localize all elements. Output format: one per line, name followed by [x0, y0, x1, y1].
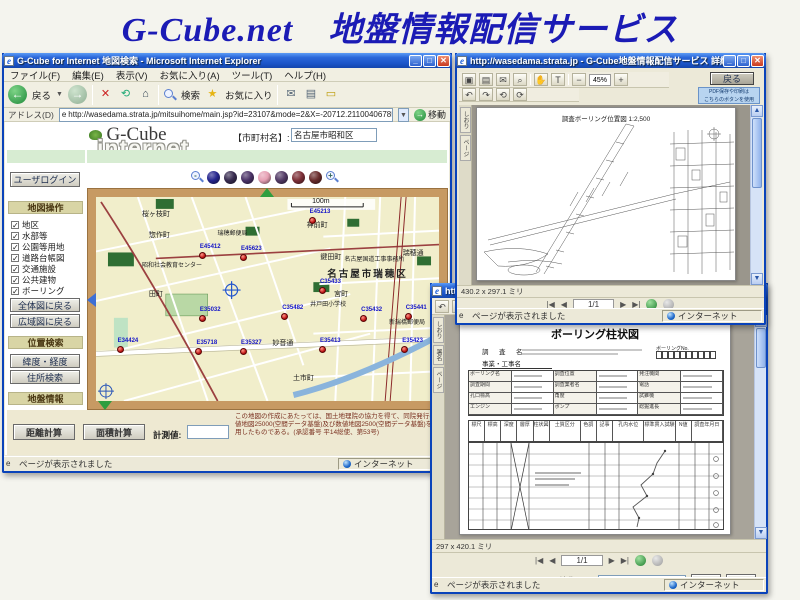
- globe-icon: [669, 581, 677, 589]
- redo-icon[interactable]: ↷: [479, 88, 493, 101]
- city-input[interactable]: 名古屋市昭和区: [291, 128, 377, 142]
- boring-statusbar: e ページが表示されました インターネット: [432, 577, 766, 592]
- boring-no-cell: [710, 351, 716, 359]
- log-col-header: 層厚: [517, 421, 533, 441]
- address-label: アドレス(D): [8, 109, 54, 121]
- layer-row-6: ✓ボーリング: [11, 285, 83, 296]
- boring-doc-title: ボーリング柱状図: [460, 326, 730, 342]
- save-icon[interactable]: ▣: [462, 73, 476, 86]
- form-value: [681, 404, 722, 414]
- zoom-control: - +: [191, 168, 351, 186]
- form-value-bar: [683, 375, 711, 377]
- form-label: 調査業者名: [554, 382, 597, 392]
- layer-checkbox[interactable]: ✓: [11, 221, 19, 229]
- map-place-label: 田町: [149, 289, 163, 299]
- layer-label: ボーリング: [22, 285, 65, 297]
- page-title: G-Cube.net 地盤情報配信サービス: [0, 2, 800, 51]
- layer-row-3: ✓道路台帳図: [11, 252, 83, 263]
- form-value-bar: [599, 386, 627, 388]
- layer-row-4: ✓交通施設: [11, 263, 83, 274]
- boring-doc-statusbar: 297 x 420.1 ミリ: [432, 539, 766, 552]
- pages-tab[interactable]: ページ: [460, 135, 471, 161]
- map-canvas[interactable]: 100m 桜ヶ枝町惣作町瑞穂郵便局昭和社会教育センター田町神前町鍵田町名古屋国道…: [96, 197, 439, 401]
- form-label: 電話: [638, 382, 681, 392]
- page-icon: e: [62, 110, 66, 119]
- zoom-ball-0[interactable]: [207, 171, 220, 184]
- log-col-header: 調査年月日: [692, 421, 723, 441]
- map-place-label: 瑞穂通: [403, 248, 424, 258]
- boring-point-label: E35032: [200, 307, 221, 313]
- close-button[interactable]: ✕: [437, 55, 450, 67]
- menu-item-4[interactable]: ツール(T): [232, 68, 273, 82]
- boring-panel-tabs: しおり 署名 ページ: [432, 315, 445, 539]
- zoom-ball-3[interactable]: [258, 171, 271, 184]
- boring-form-grid: ボーリング名調査位置発注機関調査期間調査業者名電話孔口標高角度試錐機エンジンポン…: [468, 370, 724, 416]
- status-page-icon: e: [6, 460, 15, 469]
- log-col-header: N値: [676, 421, 692, 441]
- back-label: 戻る: [32, 88, 51, 102]
- boring-point-label: E45623: [241, 246, 262, 252]
- layer-row-5: ✓公共建物: [11, 274, 83, 285]
- log-col-header: 孔内水位: [613, 421, 644, 441]
- boring-form-row: 孔口標高角度試錐機: [469, 393, 723, 404]
- back-whole-map-button[interactable]: 全体図に戻る: [10, 298, 80, 312]
- form-label: ボーリング名: [469, 371, 512, 381]
- boring-point-label: C35441: [406, 305, 427, 311]
- work-name-label: 事業・工事名: [482, 358, 552, 369]
- zoom-ball-5[interactable]: [292, 171, 305, 184]
- forward-button[interactable]: →: [68, 85, 87, 104]
- form-value: [681, 382, 722, 392]
- boring-point-label: C35432: [361, 307, 382, 313]
- form-value-bar: [683, 386, 711, 388]
- pdf-statusbar: e ページが表示されました インターネット: [457, 308, 764, 323]
- user-login-button[interactable]: ユーザログイン: [10, 172, 80, 187]
- form-label: 総掘進長: [638, 404, 681, 414]
- layer-checkbox[interactable]: ✓: [11, 232, 19, 240]
- pdf-doc-area[interactable]: 調査ボーリング位置図 1:2,500: [472, 105, 752, 285]
- map-place-label: 桜ヶ枝町: [142, 209, 170, 219]
- address-search-button[interactable]: 住所検索: [10, 370, 80, 384]
- log-col-header: 標尺: [469, 421, 485, 441]
- boring-status-text: ページが表示されました: [447, 579, 540, 591]
- pages-tab[interactable]: ページ: [433, 367, 444, 393]
- green-band-side: [7, 150, 85, 163]
- back-button[interactable]: ←: [8, 85, 27, 104]
- geo-info-header: 地盤情報: [8, 392, 83, 405]
- maximize-button[interactable]: □: [423, 55, 436, 67]
- map-search-window: e G-Cube for Internet 地図検索 - Microsoft I…: [2, 53, 452, 473]
- bookmarks-tab[interactable]: しおり: [460, 107, 471, 133]
- pdf-window-title: http://wasedama.strata.jp - G-Cube地盤情報配信…: [470, 54, 723, 67]
- go-button[interactable]: → 移動: [414, 108, 446, 121]
- boring-log-body: [468, 442, 724, 530]
- form-value-bar: [683, 397, 711, 399]
- main-status-text: ページが表示されました: [19, 458, 112, 470]
- layer-row-0: ✓地区: [11, 219, 83, 230]
- search-icon[interactable]: [164, 89, 176, 101]
- pdf-scrollbar[interactable]: ▲ ▼: [750, 105, 762, 285]
- log-col-header: 標高: [485, 421, 501, 441]
- zoom-in-icon[interactable]: +: [614, 73, 628, 86]
- main-content: G-Cube internet 【市町村名】: 名古屋市昭和区 ユーザログイン …: [5, 122, 449, 455]
- pan-down-arrow[interactable]: [98, 401, 112, 410]
- home-icon[interactable]: ⌂: [138, 87, 153, 102]
- latlon-button[interactable]: 緯度・経度: [10, 354, 80, 368]
- main-toolbar: ← 戻る ▼ → ✕ ⟲ ⌂ 検索 ★ お気に入り ✉ ▤ ▭: [4, 82, 450, 108]
- form-value: [512, 382, 553, 392]
- pdf-panel-tabs: しおり ページ: [459, 105, 472, 285]
- print-icon[interactable]: ▤: [303, 87, 318, 102]
- layer-checkbox[interactable]: ✓: [11, 276, 19, 284]
- back-dropdown-icon[interactable]: ▼: [56, 91, 63, 98]
- form-label: 調査期間: [469, 382, 512, 392]
- survey-name-label: 調 査 名: [482, 346, 525, 356]
- messenger-icon[interactable]: ▭: [323, 87, 338, 102]
- boring-point-label: E35718: [196, 340, 217, 346]
- boring-point[interactable]: [117, 346, 124, 353]
- rotate-left-icon[interactable]: ⟲: [496, 88, 510, 101]
- hand-tool-icon[interactable]: ✋: [534, 73, 548, 86]
- boring-no-boxes: [656, 351, 716, 359]
- zoom-ball-4[interactable]: [275, 171, 288, 184]
- form-value: [512, 393, 553, 403]
- map-place-label: 名古屋国道工事事務所: [344, 254, 404, 263]
- go-icon: →: [414, 109, 426, 121]
- zoom-level-value[interactable]: 45%: [589, 74, 611, 86]
- log-col-header: 深度: [501, 421, 517, 441]
- log-col-header: 標準貫入試験: [644, 421, 675, 441]
- boring-point-label: E35413: [320, 338, 341, 344]
- mail-icon[interactable]: ✉: [283, 87, 298, 102]
- menu-item-0[interactable]: ファイル(F): [10, 68, 60, 82]
- form-label: 発注機関: [638, 371, 681, 381]
- form-value-bar: [514, 386, 542, 388]
- boring-scrollbar[interactable]: ▲ ▼: [754, 315, 766, 539]
- boring-form-row: 調査期間調査業者名電話: [469, 382, 723, 393]
- form-label: エンジン: [469, 404, 512, 414]
- address-dropdown-icon[interactable]: ▼: [398, 108, 409, 122]
- favorites-label: お気に入り: [225, 88, 273, 102]
- search-label: 検索: [181, 88, 200, 102]
- menu-item-1[interactable]: 編集(E): [72, 68, 104, 82]
- log-col-header: 土質区分: [550, 421, 581, 441]
- undo-icon[interactable]: ↶: [462, 88, 476, 101]
- restore-button[interactable]: □: [737, 55, 750, 67]
- email-icon[interactable]: ✉: [496, 73, 510, 86]
- pdf-acrobat-toolbar2: ↶ ↷ ⟲ ⟳: [459, 88, 579, 102]
- globe-icon: [343, 460, 351, 468]
- map-place-label: 瑞穂郵便局: [217, 228, 247, 237]
- pdf-acrobat-toolbar: ▣ ▤ ✉ ⌕ ✋ T − 45% +: [459, 72, 669, 88]
- form-label: 孔口標高: [469, 393, 512, 403]
- green-band: [87, 150, 447, 163]
- stop-icon[interactable]: ✕: [98, 87, 113, 102]
- menu-item-3[interactable]: お気に入り(A): [159, 68, 219, 82]
- ie-icon: e: [4, 56, 14, 66]
- measure-value-input[interactable]: [187, 425, 229, 439]
- form-label: ポンプ: [554, 404, 597, 414]
- pdf-doc-statusbar: 430.2 x 297.1 ミリ: [457, 285, 764, 297]
- zoom-in-icon[interactable]: +: [326, 171, 338, 183]
- boring-doc-size: 297 x 420.1 ミリ: [436, 541, 492, 552]
- boring-doc-area[interactable]: ボーリング柱状図 調 査 名 ボーリングNo. 事業・工事名 ボーリング名調査位…: [445, 315, 754, 539]
- form-value: [597, 393, 638, 403]
- ie-icon: e: [457, 56, 467, 66]
- pdf-titlebar[interactable]: e http://wasedama.strata.jp - G-Cube地盤情報…: [455, 53, 766, 68]
- print-icon[interactable]: ▤: [479, 73, 493, 86]
- next-page-icon[interactable]: ▶: [609, 556, 615, 565]
- next-view-icon[interactable]: [652, 555, 663, 566]
- bookmarks-tab[interactable]: しおり: [433, 317, 444, 343]
- form-value: [681, 393, 722, 403]
- zoom-ball-2[interactable]: [241, 171, 254, 184]
- layer-checkbox-list: ✓地区✓水部等✓公園等用地✓道路台帳図✓交通施設✓公共建物✓ボーリング: [11, 219, 83, 296]
- map-disclaimer: この地図の作成にあたっては、国土地理院の協力を得て、同院発行の数値地図25000…: [235, 413, 445, 437]
- map-place-label: 井戸田小学校: [310, 299, 346, 308]
- address-bar: アドレス(D) e http://wasedama.strata.jp/mits…: [4, 108, 450, 122]
- zoom-out-icon[interactable]: -: [191, 171, 203, 183]
- form-value-bar: [514, 397, 542, 399]
- first-page-icon[interactable]: |◀: [535, 556, 543, 565]
- boring-form-row: エンジンポンプ総掘進長: [469, 404, 723, 415]
- measure-value-label: 計測値:: [153, 429, 181, 441]
- position-search-header: 位置検索: [8, 336, 83, 349]
- prev-view-icon[interactable]: [635, 555, 646, 566]
- map-place-label: 宮町: [334, 289, 348, 299]
- map-place-label: 鍵田町: [320, 252, 341, 262]
- close-button[interactable]: ✕: [751, 55, 764, 67]
- form-value: [512, 404, 553, 414]
- form-value: [597, 404, 638, 414]
- page-indicator: 1/1: [561, 555, 602, 566]
- boring-point[interactable]: [199, 252, 206, 259]
- layer-checkbox[interactable]: ✓: [11, 265, 19, 273]
- pdf-status-zone: インターネット: [662, 310, 762, 322]
- form-label: 試錐機: [638, 393, 681, 403]
- location-map-drawing: [478, 122, 736, 280]
- measure-panel: 距離計算 面積計算 計測値: この地図の作成にあたっては、国土地理院の協力を得て…: [7, 410, 448, 455]
- pdf-doc-size: 430.2 x 297.1 ミリ: [461, 286, 524, 297]
- globe-icon: [667, 312, 675, 320]
- log-col-header: 柱状図: [534, 421, 550, 441]
- main-statusbar: e ページが表示されました インターネット: [4, 456, 450, 471]
- layer-checkbox[interactable]: ✓: [11, 254, 19, 262]
- form-value-bar: [683, 408, 711, 410]
- main-menubar: ファイル(F)編集(E)表示(V)お気に入り(A)ツール(T)ヘルプ(H): [4, 68, 450, 82]
- area-calc-button[interactable]: 面積計算: [83, 424, 145, 440]
- select-text-icon[interactable]: T: [551, 73, 565, 86]
- boring-point[interactable]: [319, 287, 326, 294]
- status-page-icon: e: [459, 312, 468, 321]
- minimize-button[interactable]: _: [723, 55, 736, 67]
- boring-status-zone: インターネット: [664, 579, 764, 591]
- zoom-ball-1[interactable]: [224, 171, 237, 184]
- map-ops-header: 地図操作: [8, 201, 83, 214]
- refresh-icon[interactable]: ⟲: [118, 87, 133, 102]
- form-value: [681, 371, 722, 381]
- boring-point-label: E35423: [402, 338, 423, 344]
- prev-page-icon[interactable]: ◀: [549, 556, 555, 565]
- undo-icon[interactable]: ↶: [435, 300, 449, 313]
- layer-checkbox[interactable]: ✓: [11, 243, 19, 251]
- boring-point-label: C35482: [282, 305, 303, 311]
- location-map-window: e http://wasedama.strata.jp - G-Cube地盤情報…: [455, 53, 766, 325]
- layer-row-2: ✓公園等用地: [11, 241, 83, 252]
- ie-icon: e: [432, 286, 442, 296]
- city-label: 【市町村名】:: [233, 131, 290, 144]
- menu-item-5[interactable]: ヘルプ(H): [284, 68, 326, 82]
- boring-point-label: E45412: [200, 244, 221, 250]
- boring-log-sheet: ボーリング柱状図 調 査 名 ボーリングNo. 事業・工事名 ボーリング名調査位…: [459, 319, 731, 535]
- form-value-bar: [599, 397, 627, 399]
- form-value-bar: [514, 375, 542, 377]
- form-value-bar: [599, 408, 627, 410]
- pdf-status-text: ページが表示されました: [472, 310, 565, 322]
- main-window-title: G-Cube for Internet 地図検索 - Microsoft Int…: [17, 54, 409, 67]
- zoom-ball-6[interactable]: [309, 171, 322, 184]
- map-place-label: 妙音通: [272, 338, 293, 348]
- form-value: [597, 371, 638, 381]
- form-value: [512, 371, 553, 381]
- favorites-icon[interactable]: ★: [205, 87, 220, 102]
- pdf-back-button[interactable]: 戻る: [710, 72, 754, 85]
- boring-point-label: E34424: [118, 338, 139, 344]
- boring-form-row: ボーリング名調査位置発注機関: [469, 371, 723, 382]
- boring-point-label: C35433: [320, 279, 341, 285]
- location-map-sheet: 調査ボーリング位置図 1:2,500: [476, 107, 736, 281]
- form-value-bar: [514, 408, 542, 410]
- boring-column-headers: 標尺標高深度層厚柱状図土質区分色調記事孔内水位標準貫入試験N値調査年月日: [468, 420, 724, 442]
- boring-log-window: e http://wasedama.strata.jp - G-Cube地盤情報…: [430, 283, 768, 594]
- boring-point-label: E35327: [241, 340, 262, 346]
- boring-point-label: E45213: [310, 209, 331, 215]
- menu-item-2[interactable]: 表示(V): [116, 68, 148, 82]
- boring-point[interactable]: [319, 346, 326, 353]
- back-wide-map-button[interactable]: 広域図に戻る: [10, 314, 80, 328]
- form-label: 調査位置: [554, 371, 597, 381]
- log-col-header: 色調: [581, 421, 597, 441]
- layer-checkbox[interactable]: ✓: [11, 287, 19, 295]
- form-label: 角度: [554, 393, 597, 403]
- last-page-icon[interactable]: ▶|: [621, 556, 629, 565]
- map-place-label: 惣作町: [149, 230, 170, 240]
- signature-tab[interactable]: 署名: [433, 345, 444, 365]
- map-place-label: 土市町: [293, 373, 314, 383]
- map-frame: 100m 桜ヶ枝町惣作町瑞穂郵便局昭和社会教育センター田町神前町鍵田町名古屋国道…: [87, 188, 448, 410]
- layer-row-1: ✓水部等: [11, 230, 83, 241]
- boring-point[interactable]: [240, 348, 247, 355]
- pan-left-arrow[interactable]: [87, 293, 96, 307]
- form-value-bar: [599, 375, 627, 377]
- zoom-out-icon[interactable]: −: [572, 73, 586, 86]
- minimize-button[interactable]: _: [409, 55, 422, 67]
- status-page-icon: e: [434, 581, 443, 590]
- form-value: [597, 382, 638, 392]
- map-drawing: [96, 197, 439, 401]
- main-titlebar[interactable]: e G-Cube for Internet 地図検索 - Microsoft I…: [2, 53, 452, 68]
- boring-page-nav: |◀ ◀ 1/1 ▶ ▶|: [432, 552, 766, 567]
- pan-up-arrow[interactable]: [260, 188, 274, 197]
- rotate-right-icon[interactable]: ⟳: [513, 88, 527, 101]
- boring-point[interactable]: [405, 313, 412, 320]
- map-place-label: 昭和社会教育センター: [142, 260, 202, 269]
- log-col-header: 記事: [597, 421, 613, 441]
- pdf-note: PDF保存や印刷は こちらのボタンを使用: [698, 87, 760, 104]
- search-icon[interactable]: ⌕: [513, 73, 527, 86]
- map-scale-label: 100m: [312, 198, 330, 205]
- distance-calc-button[interactable]: 距離計算: [13, 424, 75, 440]
- zoom-level-balls[interactable]: [207, 171, 322, 184]
- address-input[interactable]: e http://wasedama.strata.jp/mitsuihome/m…: [59, 108, 393, 122]
